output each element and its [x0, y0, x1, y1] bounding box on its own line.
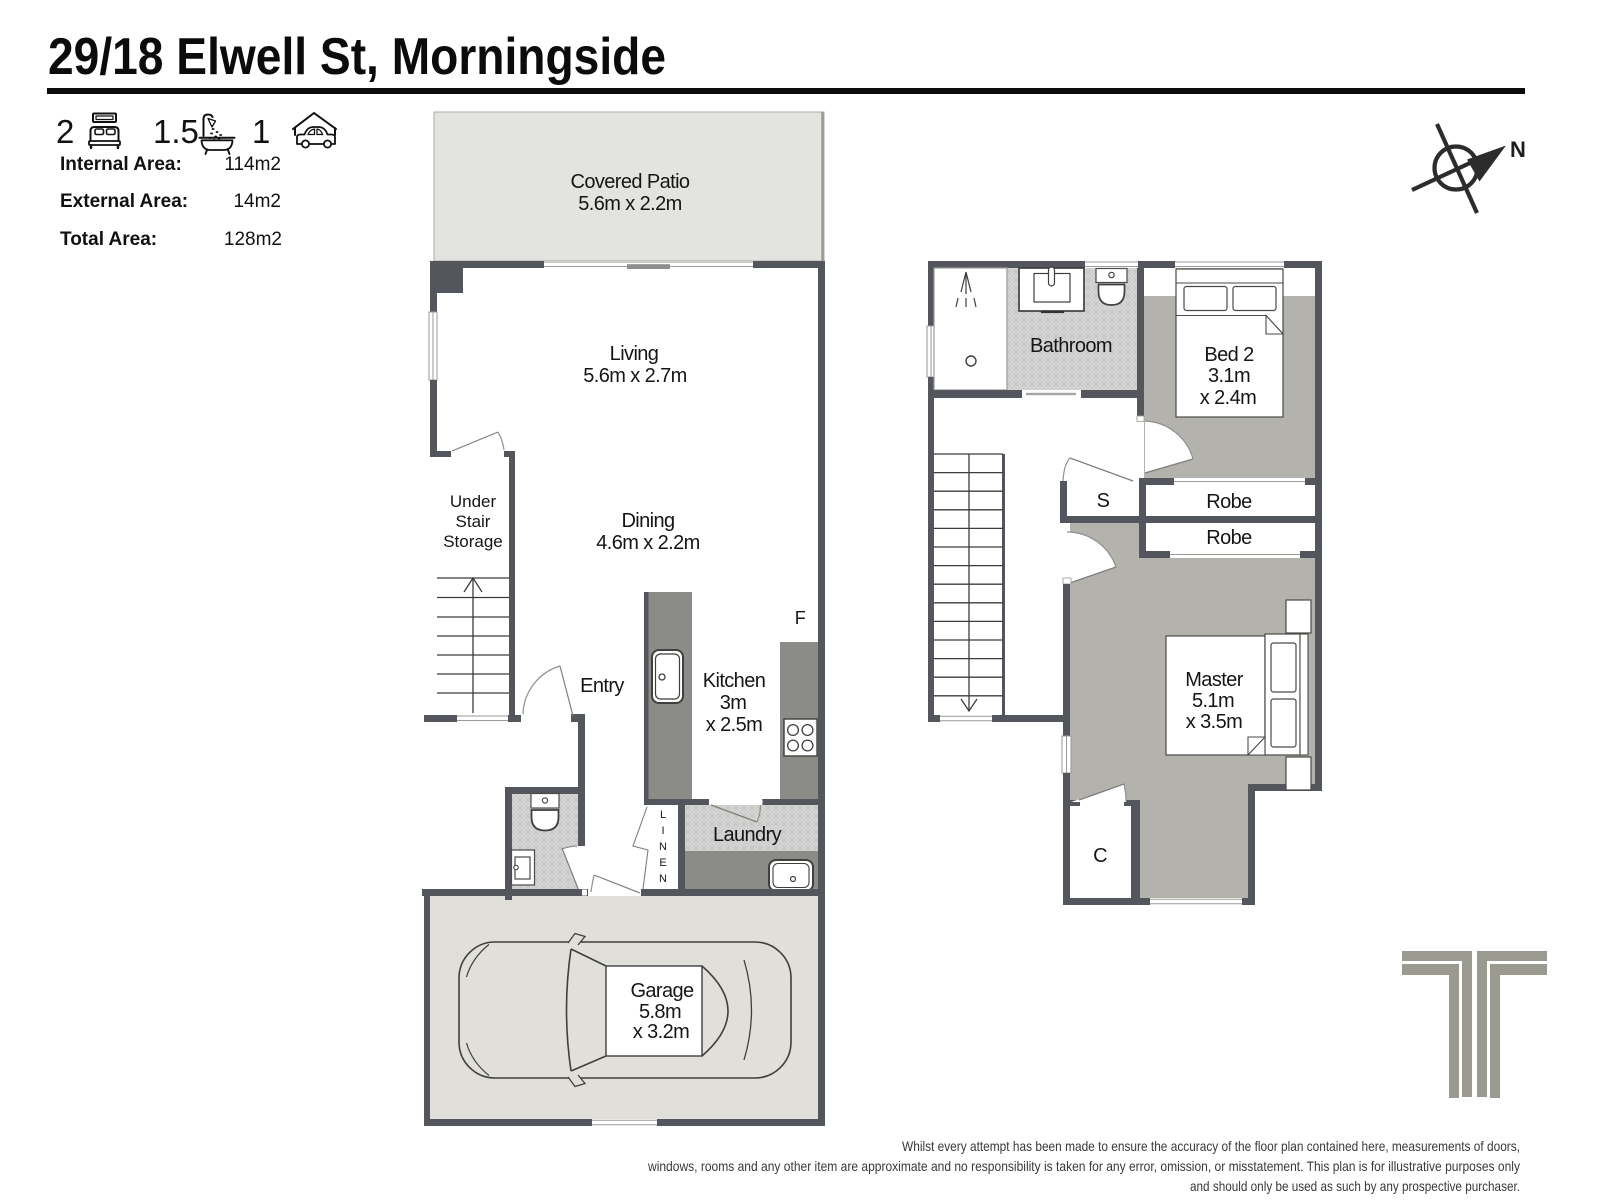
svg-text:114m2: 114m2: [224, 154, 281, 175]
svg-text:5.6m x 2.7m: 5.6m x 2.7m: [583, 365, 686, 387]
svg-text:C: C: [1093, 845, 1107, 867]
svg-text:Under: Under: [450, 492, 497, 511]
svg-text:S: S: [1097, 490, 1110, 512]
svg-text:Bathroom: Bathroom: [1030, 335, 1112, 357]
svg-text:Kitchen: Kitchen: [703, 670, 766, 692]
svg-text:Garage: Garage: [630, 980, 694, 1002]
svg-text:Living: Living: [610, 343, 659, 365]
svg-text:3m: 3m: [720, 692, 747, 714]
svg-text:L: L: [660, 809, 666, 821]
svg-text:Master: Master: [1185, 669, 1243, 691]
svg-text:windows, rooms and any other i: windows, rooms and any other item are ap…: [647, 1158, 1520, 1174]
svg-text:5.1m: 5.1m: [1192, 690, 1234, 712]
svg-text:Robe: Robe: [1206, 527, 1252, 549]
svg-text:and should only be used as suc: and should only be used as such by any p…: [1190, 1178, 1520, 1194]
svg-text:N: N: [659, 873, 667, 885]
svg-text:Bed 2: Bed 2: [1204, 344, 1254, 366]
svg-text:Total Area:: Total Area:: [60, 229, 157, 250]
svg-text:N: N: [659, 841, 667, 853]
svg-text:N: N: [1510, 137, 1526, 162]
svg-text:1.5: 1.5: [153, 113, 199, 150]
svg-text:4.6m x 2.2m: 4.6m x 2.2m: [596, 532, 699, 554]
svg-text:Entry: Entry: [580, 675, 624, 697]
svg-text:Dining: Dining: [621, 510, 674, 532]
svg-text:E: E: [659, 857, 666, 869]
svg-text:5.8m: 5.8m: [639, 1001, 681, 1023]
svg-text:Whilst every attempt has been: Whilst every attempt has been made to en…: [902, 1138, 1520, 1154]
svg-text:2: 2: [56, 113, 74, 150]
svg-text:x 3.5m: x 3.5m: [1186, 711, 1242, 733]
svg-text:Storage: Storage: [443, 532, 503, 551]
svg-text:Stair: Stair: [456, 512, 491, 531]
svg-text:x 2.5m: x 2.5m: [706, 714, 762, 736]
svg-text:1: 1: [252, 113, 270, 150]
svg-text:Robe: Robe: [1206, 491, 1252, 513]
svg-text:x 2.4m: x 2.4m: [1200, 387, 1256, 409]
svg-text:128m2: 128m2: [224, 229, 282, 250]
svg-text:x 3.2m: x 3.2m: [633, 1021, 689, 1043]
svg-text:14m2: 14m2: [233, 191, 281, 212]
svg-text:Internal Area:: Internal Area:: [60, 154, 182, 175]
svg-text:29/18 Elwell St, Morningside: 29/18 Elwell St, Morningside: [48, 28, 666, 86]
svg-text:Covered Patio: Covered Patio: [571, 171, 690, 193]
svg-text:5.6m x 2.2m: 5.6m x 2.2m: [578, 193, 681, 215]
svg-text:External Area:: External Area:: [60, 191, 188, 212]
svg-text:I: I: [661, 825, 664, 837]
svg-text:Laundry: Laundry: [713, 824, 782, 846]
svg-text:F: F: [795, 608, 806, 628]
svg-text:3.1m: 3.1m: [1208, 365, 1250, 387]
